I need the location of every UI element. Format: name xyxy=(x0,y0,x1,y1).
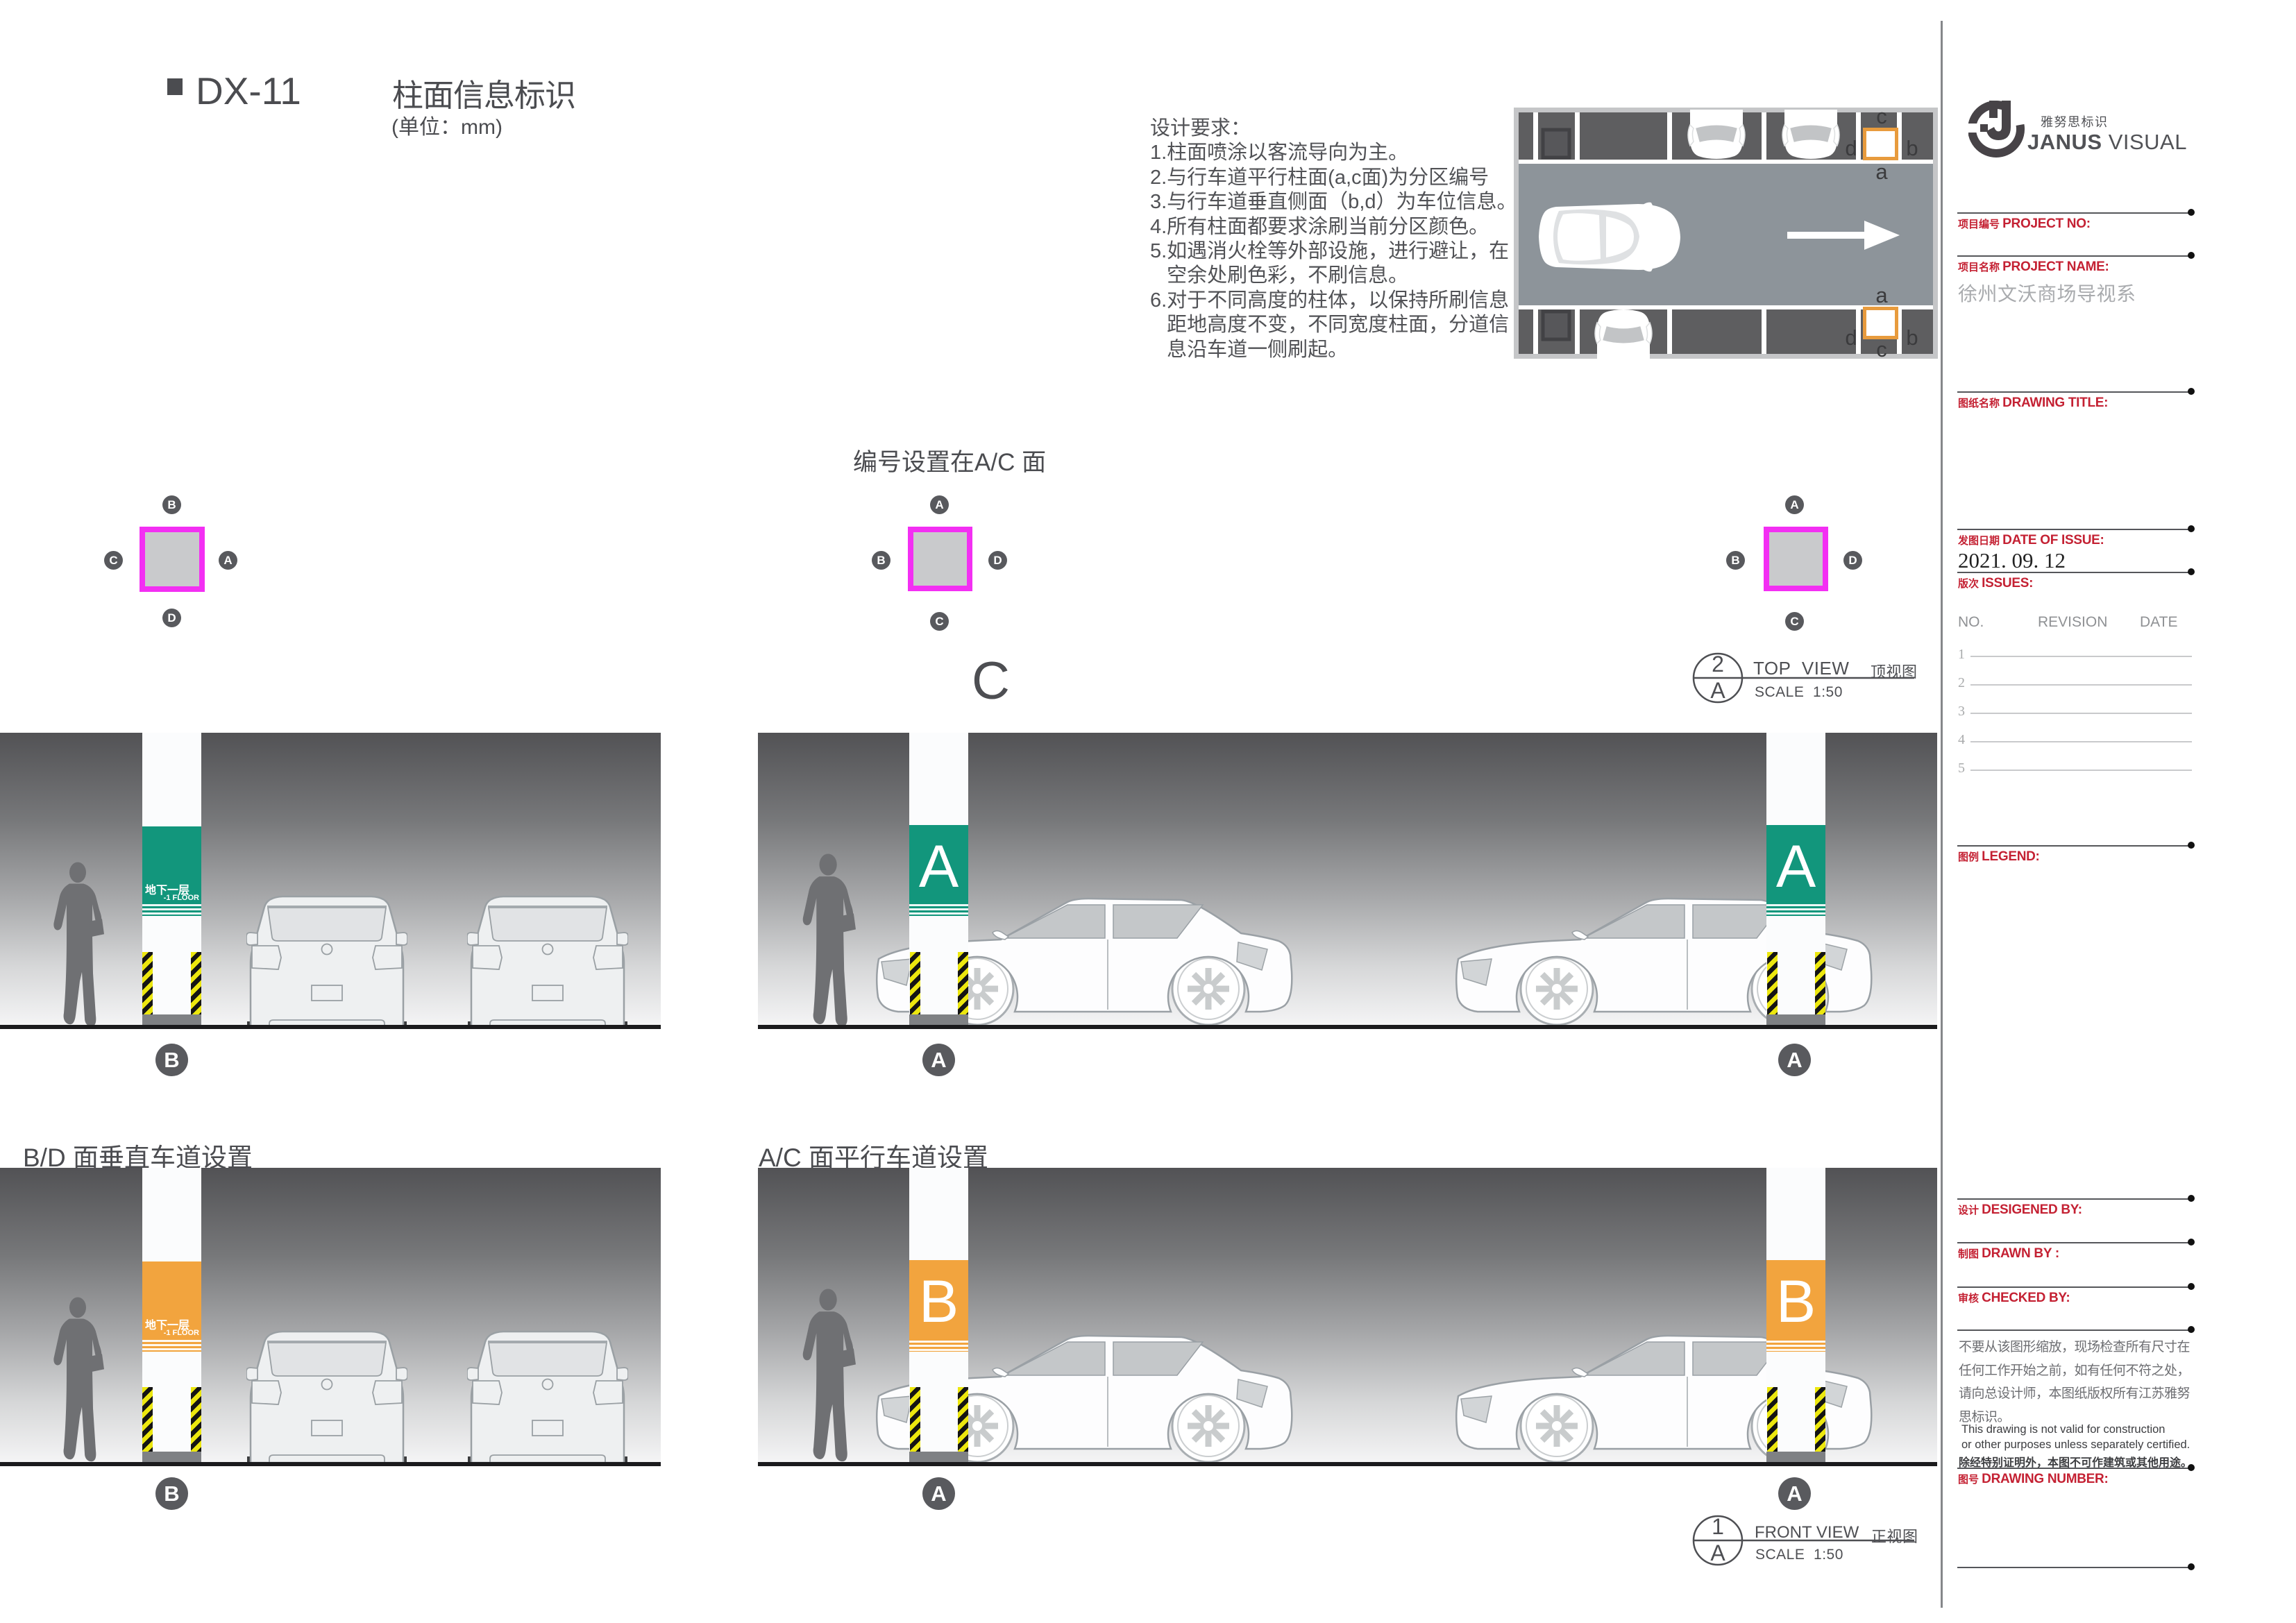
svg-text:A: A xyxy=(1710,678,1725,703)
svg-text:b: b xyxy=(1906,136,1918,160)
svg-text:c: c xyxy=(1876,337,1887,359)
svg-text:d: d xyxy=(1845,325,1857,350)
svg-text:a: a xyxy=(1875,283,1888,307)
svg-text:b: b xyxy=(1906,325,1918,350)
svg-text:2: 2 xyxy=(1712,652,1724,677)
svg-text:A: A xyxy=(1710,1540,1725,1565)
svg-text:1: 1 xyxy=(1712,1515,1724,1539)
svg-text:d: d xyxy=(1845,136,1857,160)
svg-text:c: c xyxy=(1876,108,1887,128)
svg-text:a: a xyxy=(1875,160,1888,184)
